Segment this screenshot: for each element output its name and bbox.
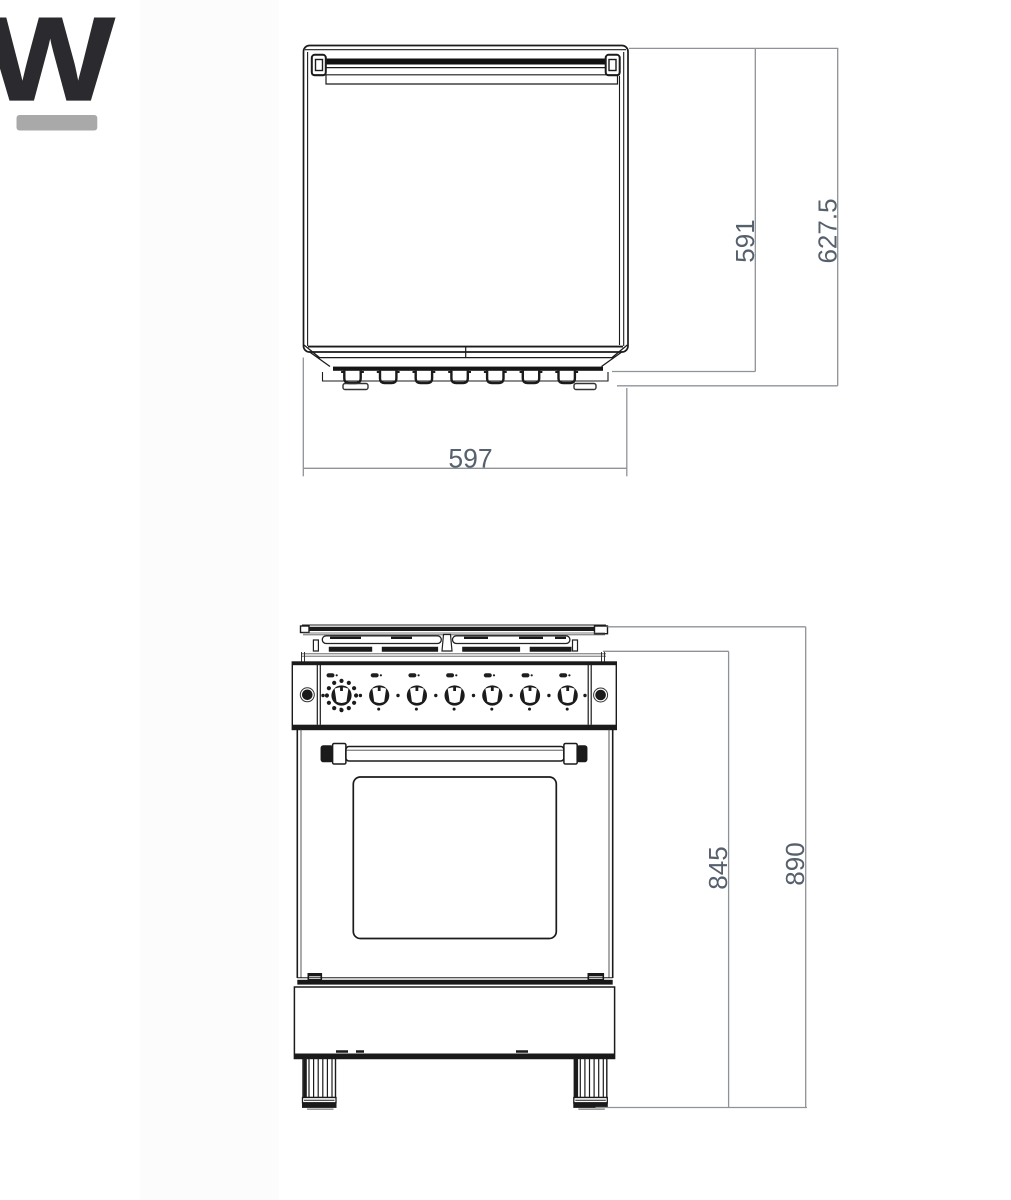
svg-text:845: 845 [703,846,733,889]
svg-text:597: 597 [448,444,492,474]
svg-text:890: 890 [780,842,810,885]
svg-text:627.5: 627.5 [812,198,842,263]
svg-text:W: W [0,0,115,126]
svg-text:591: 591 [730,219,760,262]
